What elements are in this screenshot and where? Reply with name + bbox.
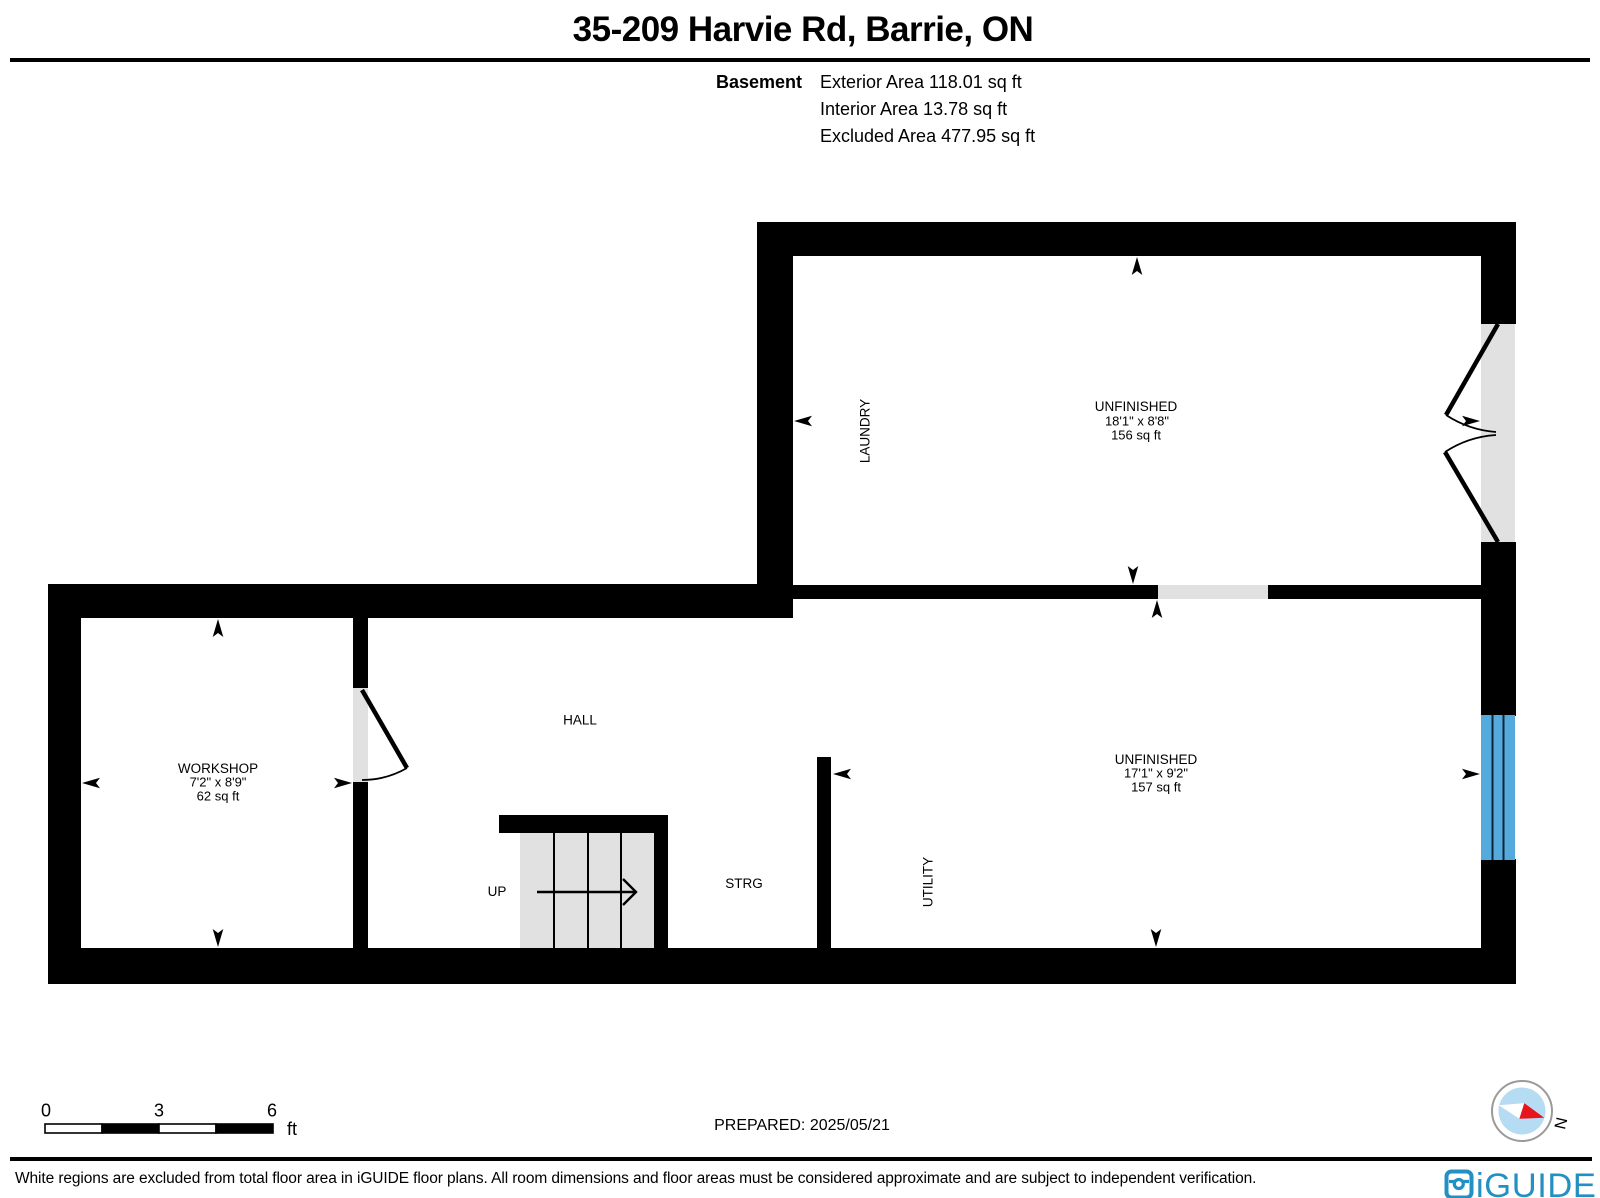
svg-text:6: 6 (267, 1101, 277, 1121)
svg-text:PREPARED: 2025/05/21: PREPARED: 2025/05/21 (714, 1117, 890, 1134)
svg-text:62 sq ft: 62 sq ft (197, 789, 240, 804)
svg-text:HALL: HALL (563, 713, 597, 728)
svg-text:N: N (1550, 1115, 1569, 1130)
svg-text:156 sq ft: 156 sq ft (1111, 428, 1161, 443)
svg-text:iGUIDE: iGUIDE (1476, 1167, 1597, 1198)
svg-text:3: 3 (154, 1101, 164, 1121)
svg-text:18'1" x 8'8": 18'1" x 8'8" (1105, 414, 1169, 429)
svg-text:STRG: STRG (725, 876, 763, 891)
svg-text:ft: ft (287, 1119, 297, 1139)
svg-text:WORKSHOP: WORKSHOP (178, 761, 258, 776)
svg-text:UNFINISHED: UNFINISHED (1115, 752, 1198, 767)
svg-text:7'2" x 8'9": 7'2" x 8'9" (190, 775, 247, 790)
svg-text:UTILITY: UTILITY (921, 857, 936, 907)
svg-text:LAUNDRY: LAUNDRY (858, 399, 873, 463)
svg-text:0: 0 (41, 1101, 51, 1121)
svg-text:157 sq ft: 157 sq ft (1131, 780, 1181, 795)
svg-text:UNFINISHED: UNFINISHED (1095, 399, 1178, 414)
svg-text:UP: UP (488, 884, 507, 899)
svg-text:17'1" x 9'2": 17'1" x 9'2" (1124, 766, 1188, 781)
